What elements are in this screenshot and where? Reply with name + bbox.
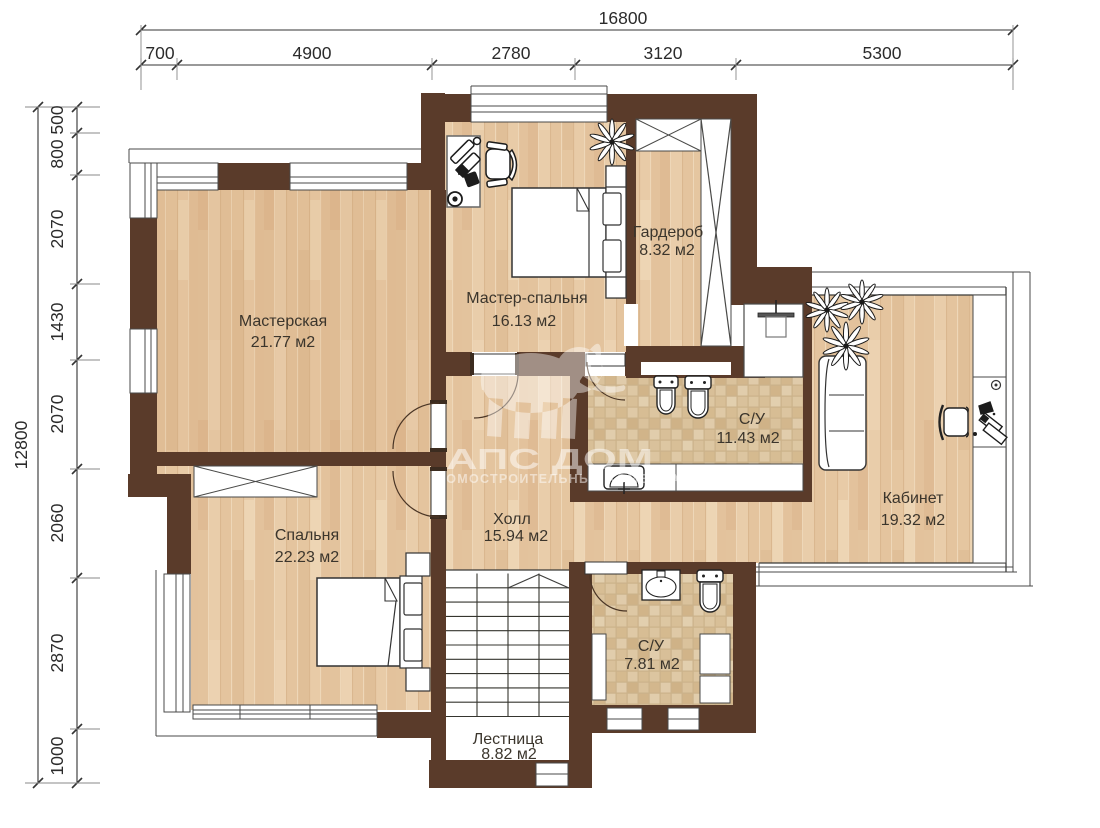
svg-text:Кабинет: Кабинет (883, 490, 945, 507)
svg-text:С/У: С/У (739, 411, 766, 428)
svg-text:700: 700 (145, 43, 174, 63)
svg-text:5300: 5300 (863, 43, 902, 63)
svg-text:2870: 2870 (47, 633, 67, 672)
svg-text:Мастер-спальня: Мастер-спальня (466, 290, 587, 307)
svg-text:1000: 1000 (47, 736, 67, 775)
svg-text:12800: 12800 (11, 420, 31, 469)
svg-text:8.32 м2: 8.32 м2 (639, 242, 695, 259)
svg-text:16.13 м2: 16.13 м2 (492, 313, 556, 330)
svg-text:С/У: С/У (638, 638, 665, 655)
svg-text:15.94 м2: 15.94 м2 (484, 528, 548, 545)
svg-text:16800: 16800 (599, 8, 648, 28)
svg-text:3120: 3120 (644, 43, 683, 63)
svg-text:1430: 1430 (47, 302, 67, 341)
svg-text:800: 800 (47, 139, 67, 168)
svg-text:Мастерская: Мастерская (239, 313, 327, 330)
svg-text:8.82 м2: 8.82 м2 (481, 746, 537, 763)
svg-text:Холл: Холл (493, 511, 531, 528)
svg-text:22.23 м2: 22.23 м2 (275, 549, 339, 566)
svg-text:500: 500 (47, 105, 67, 134)
svg-text:Гардероб: Гардероб (633, 224, 703, 241)
svg-text:19.32 м2: 19.32 м2 (881, 512, 945, 529)
svg-text:2780: 2780 (492, 43, 531, 63)
svg-text:2060: 2060 (47, 503, 67, 542)
svg-text:ДОМОСТРОИТЕЛЬНЫЙ КОМБИНАТ: ДОМОСТРОИТЕЛЬНЫЙ КОМБИНАТ (436, 471, 689, 486)
svg-text:2070: 2070 (47, 209, 67, 248)
svg-text:7.81 м2: 7.81 м2 (624, 656, 680, 673)
svg-text:11.43 м2: 11.43 м2 (716, 430, 779, 447)
svg-text:Спальня: Спальня (275, 527, 339, 544)
svg-text:2070: 2070 (47, 394, 67, 433)
svg-text:21.77 м2: 21.77 м2 (251, 334, 315, 351)
svg-text:4900: 4900 (293, 43, 332, 63)
